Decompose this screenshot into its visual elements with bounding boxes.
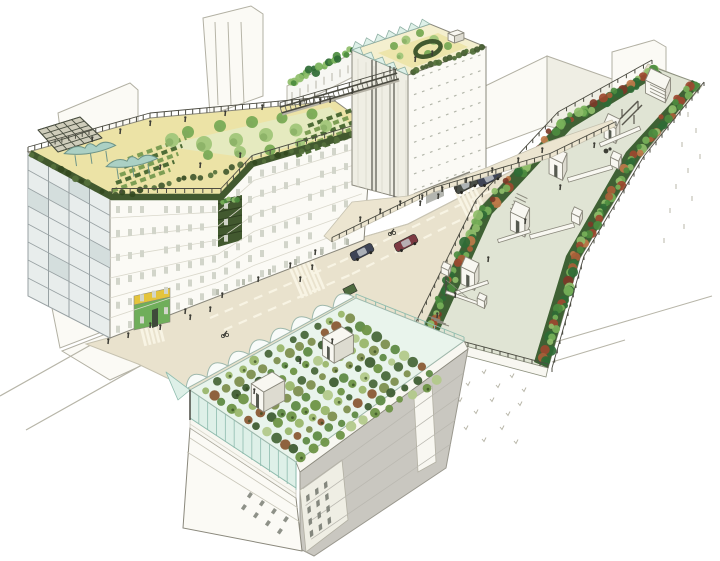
vent-box bbox=[611, 151, 622, 169]
tower-side-facade bbox=[352, 50, 408, 200]
bg-building bbox=[477, 56, 547, 152]
sketch-scene bbox=[0, 0, 720, 561]
bg-tower bbox=[203, 6, 263, 115]
person bbox=[419, 200, 421, 206]
greenhouse-pilaster bbox=[414, 386, 436, 472]
roof-shed bbox=[448, 30, 464, 43]
illustration-canvas bbox=[0, 0, 720, 561]
vent-box bbox=[572, 207, 583, 225]
